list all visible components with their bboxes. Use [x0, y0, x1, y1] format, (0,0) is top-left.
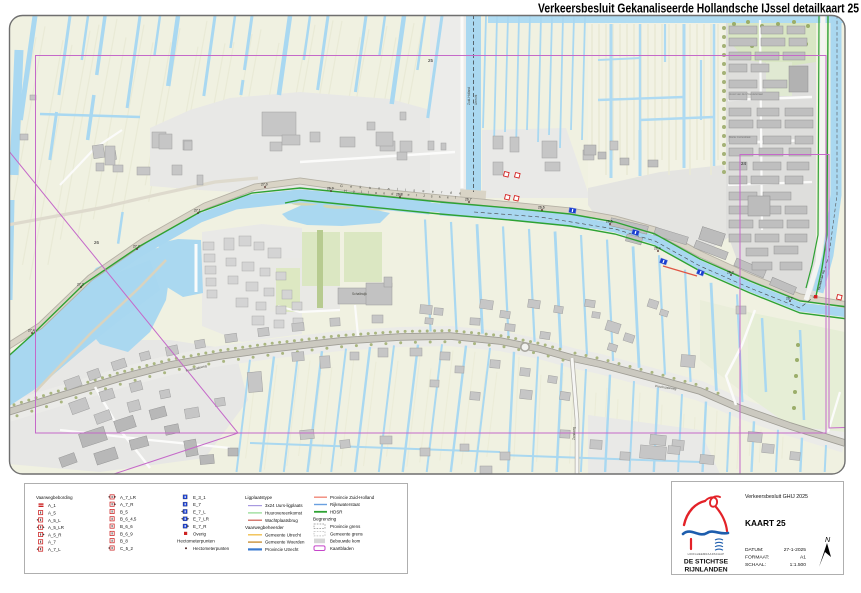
svg-text:SCHAAL:: SCHAAL: [745, 562, 766, 568]
svg-text:26,6: 26,6 [538, 205, 545, 209]
svg-text:Gemeente Woerden: Gemeente Woerden [265, 540, 305, 545]
svg-text:FORMAAT:: FORMAAT: [745, 555, 769, 561]
svg-text:A_5_L: A_5_L [48, 518, 61, 523]
svg-text:26,7: 26,7 [465, 197, 472, 201]
svg-text:B_6_9: B_6_9 [120, 531, 133, 536]
svg-text:Gemeente grens: Gemeente grens [330, 531, 364, 536]
svg-text:DE STICHTSE: DE STICHTSE [684, 559, 729, 566]
svg-text:26,3: 26,3 [727, 270, 734, 274]
svg-text:27-1-2025: 27-1-2025 [784, 547, 807, 553]
svg-text:Rijkswaterstaat: Rijkswaterstaat [330, 502, 361, 507]
svg-text:Provincie Zuid-Holland: Provincie Zuid-Holland [330, 495, 375, 500]
svg-text:A1: A1 [800, 555, 806, 561]
svg-text:Marie Curiestraat: Marie Curiestraat [729, 135, 751, 139]
svg-text:RIJNLANDEN: RIJNLANDEN [684, 567, 727, 574]
svg-text:C_5_2: C_5_2 [120, 546, 133, 551]
svg-text:27,4: 27,4 [28, 328, 35, 332]
svg-text:B_6_6: B_6_6 [120, 524, 133, 529]
svg-text:HDSR: HDSR [330, 509, 342, 514]
svg-text:A_5_R: A_5_R [48, 532, 61, 537]
svg-text:E_7_L: E_7_L [193, 509, 206, 514]
svg-text:A_1: A_1 [48, 503, 56, 508]
svg-text:27,3: 27,3 [77, 282, 84, 286]
svg-text:B_6_4,5: B_6_4,5 [120, 517, 137, 522]
svg-text:E_3_1: E_3_1 [193, 495, 206, 500]
svg-text:A_7_R: A_7_R [120, 502, 133, 507]
svg-text:26,4: 26,4 [654, 246, 661, 250]
svg-text:3x24 Uurs-ligplaats: 3x24 Uurs-ligplaats [265, 503, 303, 508]
svg-text:Vaarwegbebording: Vaarwegbebording [36, 495, 73, 500]
svg-text:Kaartbladen: Kaartbladen [330, 546, 354, 551]
svg-text:Overig: Overig [193, 531, 206, 536]
svg-text:E_7_LR: E_7_LR [193, 517, 209, 522]
svg-text:HOOGHEEMRAADSCHAP: HOOGHEEMRAADSCHAP [688, 552, 725, 556]
svg-text:27,2: 27,2 [133, 244, 140, 248]
svg-text:Utrecht: Utrecht [474, 95, 478, 105]
svg-text:Verkeersbesluit GHIJ 2025: Verkeersbesluit GHIJ 2025 [745, 494, 808, 500]
svg-text:Huurovereenkomst: Huurovereenkomst [265, 511, 303, 516]
svg-text:Ligplaatstype: Ligplaatstype [245, 495, 273, 500]
svg-text:Hectometerpunten: Hectometerpunten [193, 546, 230, 551]
svg-text:26,9: 26,9 [327, 186, 334, 190]
svg-text:Gemeente Utrecht: Gemeente Utrecht [265, 532, 302, 537]
svg-text:27,1: 27,1 [194, 208, 201, 212]
svg-text:Zandweg: Zandweg [572, 427, 576, 440]
svg-text:24: 24 [741, 161, 747, 166]
svg-text:B_8: B_8 [120, 539, 128, 544]
svg-text:KAART 25: KAART 25 [745, 518, 786, 528]
svg-text:N: N [825, 535, 831, 544]
svg-text:Joost van den Vondelstraat: Joost van den Vondelstraat [729, 92, 763, 96]
svg-text:Bebouwde kom: Bebouwde kom [330, 539, 361, 544]
svg-text:A_7: A_7 [48, 540, 56, 545]
svg-text:1:1.500: 1:1.500 [790, 562, 807, 568]
svg-text:26,2: 26,2 [786, 296, 793, 300]
svg-text:DATUM:: DATUM: [745, 547, 763, 553]
svg-text:26: 26 [94, 240, 100, 245]
svg-text:25: 25 [428, 58, 434, 63]
svg-text:26,5: 26,5 [606, 219, 613, 223]
svg-text:E_7_R: E_7_R [193, 524, 206, 529]
svg-text:A_7_L: A_7_L [48, 547, 61, 552]
svg-text:Provincie Utrecht: Provincie Utrecht [265, 547, 299, 552]
svg-text:27,0: 27,0 [261, 182, 268, 186]
svg-text:Vaarwegbeheerder: Vaarwegbeheerder [245, 525, 284, 530]
svg-text:A_5: A_5 [48, 511, 56, 516]
svg-text:Wachtplaatsbrug: Wachtplaatsbrug [265, 518, 298, 523]
svg-text:B_5: B_5 [120, 509, 128, 514]
svg-text:E_7: E_7 [193, 502, 201, 507]
svg-text:Provincie grens: Provincie grens [330, 524, 361, 529]
svg-text:Verkeersbesluit Gekanaliseerde: Verkeersbesluit Gekanaliseerde Hollandsc… [538, 2, 859, 16]
svg-text:A_7_LR: A_7_LR [120, 495, 136, 500]
svg-text:Begrenzing: Begrenzing [313, 517, 337, 522]
svg-text:Zuid-Holland: Zuid-Holland [467, 87, 471, 105]
svg-text:Hectometerpunten: Hectometerpunten [177, 539, 215, 544]
svg-text:A_5_LR: A_5_LR [48, 525, 64, 530]
svg-text:Schalkwijk: Schalkwijk [352, 292, 367, 296]
